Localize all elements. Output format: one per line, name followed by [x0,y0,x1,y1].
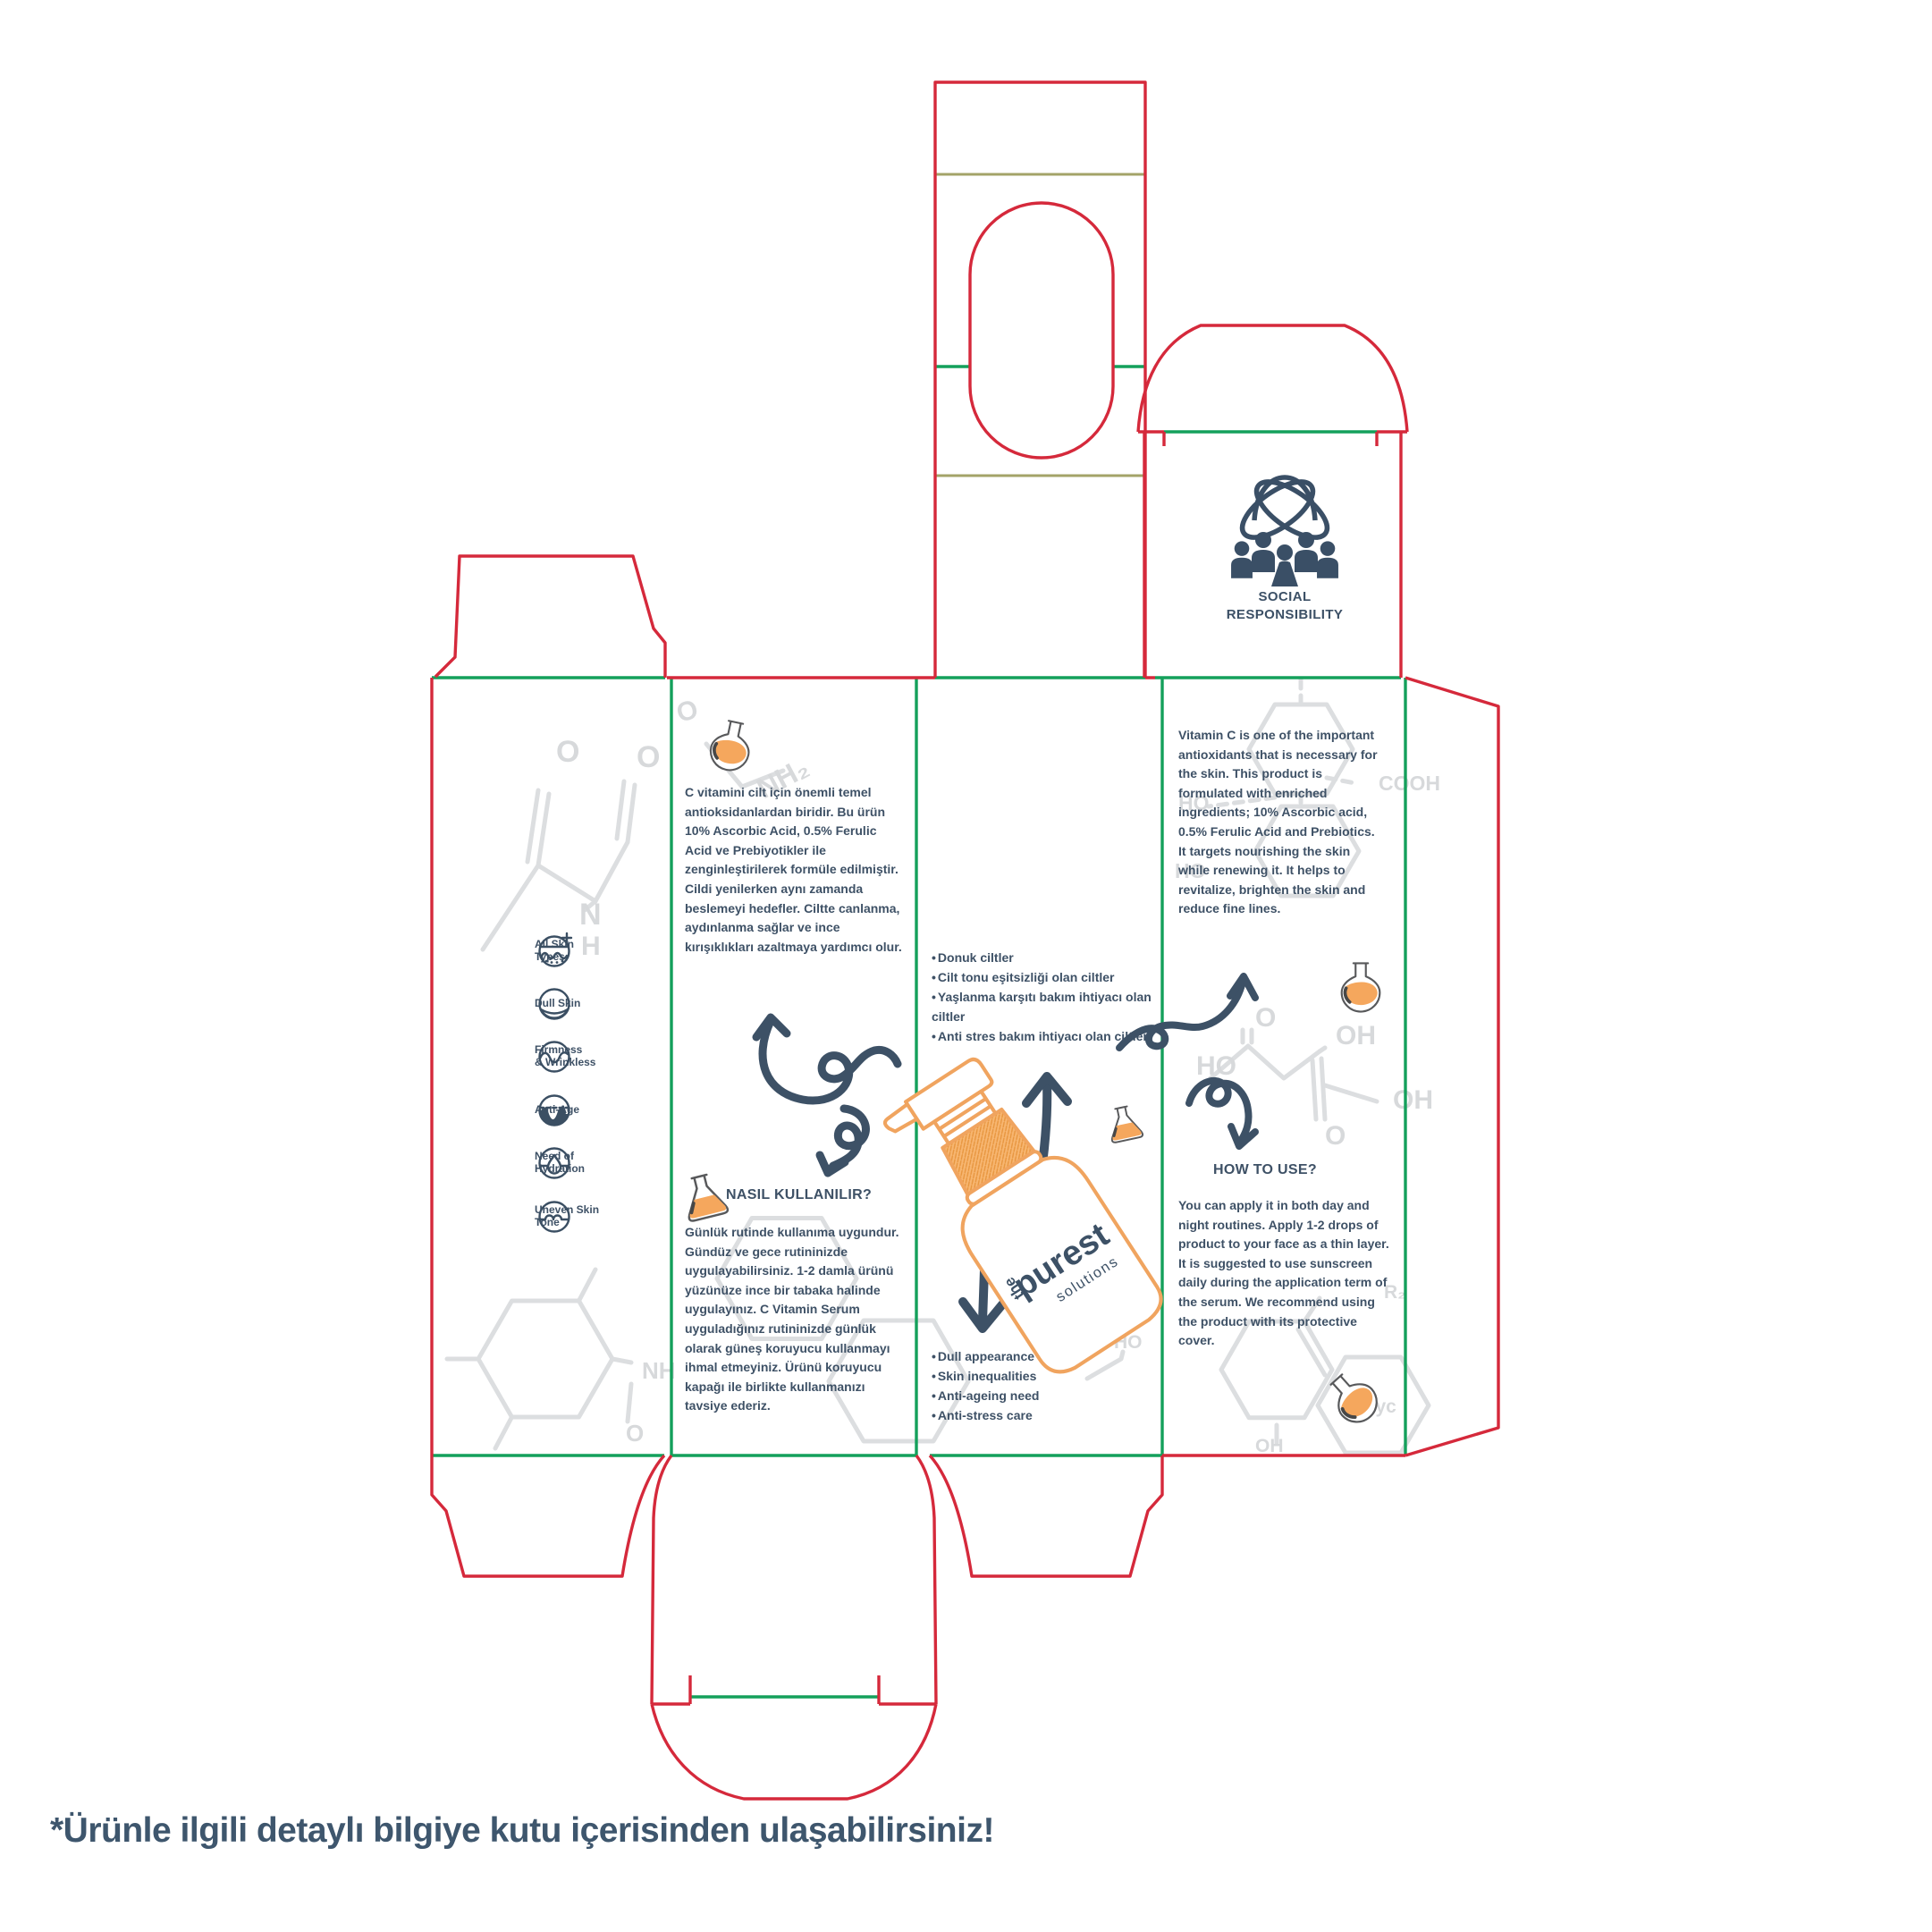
english-how-to-title: HOW TO USE? [1213,1162,1317,1178]
uneven-skin-tone-icon [535,1197,574,1236]
serum-bottle-illustration: the purest solutions [881,1042,1169,1382]
english-how-to-text: You can apply it in both day and night r… [1178,1196,1395,1351]
turkish-how-to-title: NASIL KULLANILIR? [726,1187,872,1203]
social-label-line1: SOCIAL [1186,588,1383,606]
chem-ghost-label: N [579,898,602,932]
list-item: Skin inequalities [932,1366,1162,1386]
social-responsibility-label: SOCIAL RESPONSIBILITY [1186,588,1383,624]
chem-ghost-label: HO [1196,1051,1236,1081]
chem-ghost-label: O [673,695,701,729]
skin-type-uneven-tone: Uneven Skin Tone [535,1197,599,1236]
skin-type-dull-skin: Dull Skin [535,984,580,1024]
footnote: *Ürünle ilgili detaylı bilgiye kutu içer… [50,1811,994,1851]
round-flask-icon-right [1342,963,1380,1011]
tilted-flask-icon [1322,1366,1385,1430]
skin-type-all-skin-types: All Skin Types [535,932,574,971]
social-label-line2: RESPONSIBILITY [1186,606,1383,624]
loop-arrow-down [833,1109,865,1166]
english-description: Vitamin C is one of the important antiox… [1178,726,1384,919]
skin-needs-list-tr: Donuk ciltler Cilt tonu eşitsizliği olan… [932,948,1162,1046]
list-item: Donuk ciltler [932,948,1162,967]
chem-ghost-label: OH [1393,1085,1433,1115]
list-item: Anti-ageing need [932,1386,1162,1405]
hanger-cutout [970,203,1113,458]
turkish-how-to-text: Günlük rutinde kullanıma uygundur. Gündü… [685,1223,907,1416]
list-item: Anti-stress care [932,1405,1162,1425]
chem-ghost-label: COOH [1379,772,1440,795]
turkish-description: C vitamini cilt için önemli temel antiok… [685,783,907,957]
chem-ghost-label: H [581,932,601,961]
erlenmeyer-flask-icon [680,1172,729,1222]
anti-age-icon [535,1091,574,1130]
social-responsibility-icon [1231,471,1338,586]
dull-skin-icon [535,984,574,1024]
need-of-hydration-icon [535,1143,574,1183]
chem-ghost-label: O [1325,1121,1346,1151]
list-item: Anti stres bakım ihtiyacı olan ciltler [932,1026,1162,1046]
chem-ghost-label: O [626,1420,644,1447]
chem-ghost-label: O [637,740,660,774]
chem-ghost-label: OH [1336,1021,1376,1050]
loop-arrow-down-right [1189,1081,1249,1141]
list-item: Yaşlanma karşıtı bakım ihtiyacı olan cil… [932,987,1162,1026]
skin-needs-list-en: Dull appearance Skin inequalities Anti-a… [932,1346,1162,1425]
firmness-wrinkless-icon [535,1037,574,1076]
chem-ghost-label: OH [1255,1436,1284,1456]
chem-ghost-label: O [556,735,579,769]
small-erlenmeyer-flask-icon [1106,1104,1143,1143]
chem-ghost-label: O [1255,1003,1276,1033]
list-item: Cilt tonu eşitsizliği olan ciltler [932,967,1162,987]
skin-type-firmness: Firmness & Wrinkless [535,1037,595,1076]
all-skin-types-icon [535,932,574,971]
straight-arrow-up [1042,1082,1047,1164]
packaging-dieline-sheet: OONHONH₂NHOCOOHHOHOHOOOHOHOR₂OGlycOHHO [0,0,1932,1932]
list-item: Dull appearance [932,1346,1162,1366]
skin-type-anti-age: Anti-Age [535,1091,579,1130]
round-flask-icon [707,719,755,774]
skin-type-hydration: Need of Hydration [535,1143,585,1183]
